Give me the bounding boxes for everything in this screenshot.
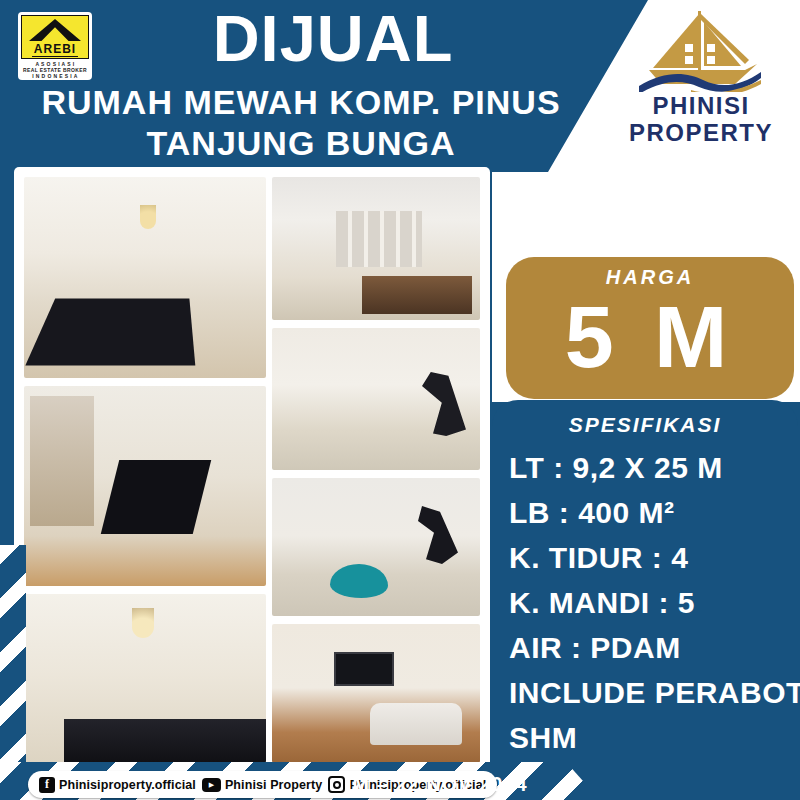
page-title: DIJUAL — [168, 0, 498, 78]
youtube-handle: Phinisi Property — [225, 778, 322, 792]
listing-date-code: IM – 22 NOV 2024 — [346, 773, 528, 796]
spec-bedrooms: K. TIDUR : 4 — [509, 535, 798, 580]
brand-logo: PHINISI PROPERTY — [608, 8, 794, 146]
price-value: 5 M — [506, 291, 794, 383]
price-label: HARGA — [506, 266, 794, 289]
photo-gym-hall — [272, 328, 480, 470]
arebi-subtext: A S O S I A S I REAL ESTATE BROKER I N D… — [21, 61, 89, 79]
left-stripe-ribbon — [0, 545, 26, 800]
youtube-link[interactable]: ▶ Phinisi Property — [202, 778, 322, 792]
property-title: RUMAH MEWAH KOMP. PINUS TANJUNG BUNGA — [16, 82, 586, 164]
arebi-subline: I N D O N E S I A — [21, 73, 89, 79]
roof-icon — [29, 19, 81, 41]
spec-water: AIR : PDAM — [509, 625, 798, 670]
facebook-link[interactable]: f Phinisiproperty.official — [39, 777, 196, 793]
photo-tv-room — [272, 624, 480, 763]
spec-bathrooms: K. MANDI : 5 — [509, 580, 798, 625]
spec-furniture: INCLUDE PERABOT — [509, 670, 798, 715]
specs-title: SPESIFIKASI — [492, 400, 798, 437]
spec-certificate: SHM — [509, 715, 798, 760]
brand-name-line1: PHINISI — [608, 92, 794, 119]
specs-panel: SPESIFIKASI LT : 9,2 X 25 M LB : 400 M² … — [492, 400, 798, 800]
price-badge: HARGA 5 M — [506, 257, 794, 399]
facebook-icon: f — [39, 777, 55, 793]
photo-dining-room — [24, 177, 266, 378]
phinisi-boat-icon — [639, 8, 763, 92]
spec-building-size: LB : 400 M² — [509, 490, 798, 535]
arebi-wordmark: AREBI — [22, 42, 88, 56]
property-title-line1: RUMAH MEWAH KOMP. PINUS — [16, 82, 586, 123]
photo-kitchen — [24, 594, 266, 763]
specs-list: LT : 9,2 X 25 M LB : 400 M² K. TIDUR : 4… — [492, 445, 798, 760]
arebi-logo: AREBI A S O S I A S I REAL ESTATE BROKER… — [18, 12, 92, 80]
youtube-icon: ▶ — [202, 778, 221, 792]
photo-living-shelves — [272, 177, 480, 320]
photo-mezzanine-view — [24, 386, 266, 586]
brand-name-line2: PROPERTY — [608, 119, 794, 146]
facebook-handle: Phinisiproperty.official — [59, 778, 196, 792]
spec-land-size: LT : 9,2 X 25 M — [509, 445, 798, 490]
property-title-line2: TANJUNG BUNGA — [16, 123, 586, 164]
photo-landing-beanbag — [272, 478, 480, 616]
flyer-canvas: AREBI A S O S I A S I REAL ESTATE BROKER… — [0, 0, 800, 800]
arebi-roof-emblem: AREBI — [21, 15, 89, 59]
instagram-icon — [328, 776, 345, 793]
